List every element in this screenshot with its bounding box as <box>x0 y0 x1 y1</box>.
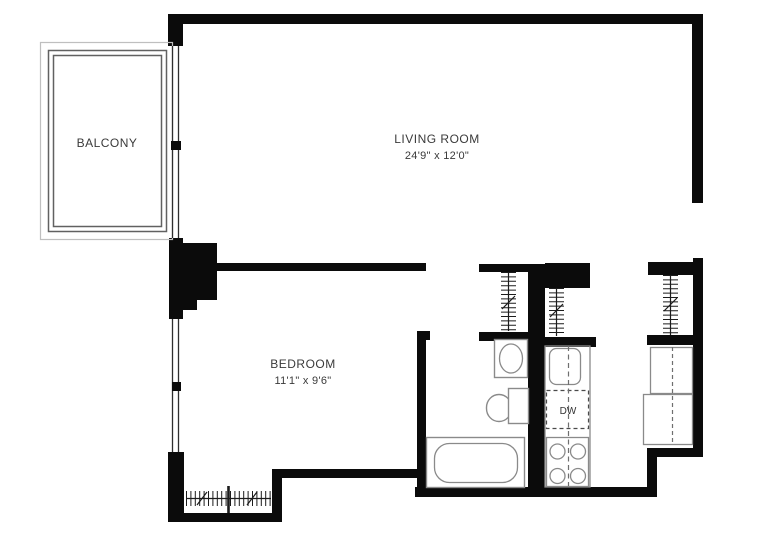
living-room-label: LIVING ROOM <box>394 132 480 146</box>
wall-bottom <box>415 487 657 497</box>
wall-right-upper <box>692 14 703 203</box>
kitchen-sink-icon <box>550 349 581 385</box>
wall-right-lower <box>693 258 703 457</box>
wall-entry-block <box>169 243 217 300</box>
wall-bath-kitchen-divider <box>528 264 545 497</box>
refrigerator-icon <box>644 395 693 445</box>
kitchen: DW <box>545 346 693 487</box>
closet-pantry <box>550 288 563 336</box>
balcony-label: BALCONY <box>77 136 138 150</box>
stove-burner-icon <box>550 469 565 484</box>
window-mullion <box>172 382 181 391</box>
bedroom-label: BEDROOM <box>270 357 336 371</box>
wall-bath-door-jamb <box>417 331 430 340</box>
window-wall-bedroom <box>172 319 181 452</box>
dishwasher-label: DW <box>560 406 577 417</box>
wall-closet-bottom <box>168 513 282 522</box>
room-labels: LIVING ROOM 24'9" x 12'0" BEDROOM 11'1" … <box>270 132 480 387</box>
closet-right <box>664 275 677 335</box>
stove-burner-icon <box>571 469 586 484</box>
wall-bedroom-east <box>417 331 426 497</box>
window-wall-balcony <box>171 46 181 238</box>
wall-left-lower <box>168 452 184 522</box>
wall-bedroom-south <box>272 469 427 478</box>
balcony: BALCONY <box>41 43 173 240</box>
wall-left-closet-top <box>479 264 532 272</box>
wall-entry-step <box>169 300 197 310</box>
bedroom-dimensions: 11'1" x 9'6" <box>275 375 332 387</box>
wall-pantry-block <box>545 263 590 288</box>
living-room-dimensions: 24'9" x 12'0" <box>405 150 469 162</box>
sink-counter <box>509 389 529 424</box>
closet-hall-left <box>502 272 515 331</box>
counter-cabinet <box>651 348 693 394</box>
stove-burner-icon <box>550 444 565 459</box>
pedestal-sink-icon <box>487 395 512 422</box>
wall-fridge-top <box>647 335 697 345</box>
floor-plan-drawing: BALCONY <box>0 0 768 537</box>
wall-bedroom-north <box>215 263 426 271</box>
floor-plan-page: BALCONY <box>0 0 768 537</box>
window-mullion <box>171 141 181 150</box>
bathroom <box>427 340 529 488</box>
wall-top <box>168 14 702 24</box>
closet-bedroom <box>186 486 271 513</box>
stove-burner-icon <box>571 444 586 459</box>
